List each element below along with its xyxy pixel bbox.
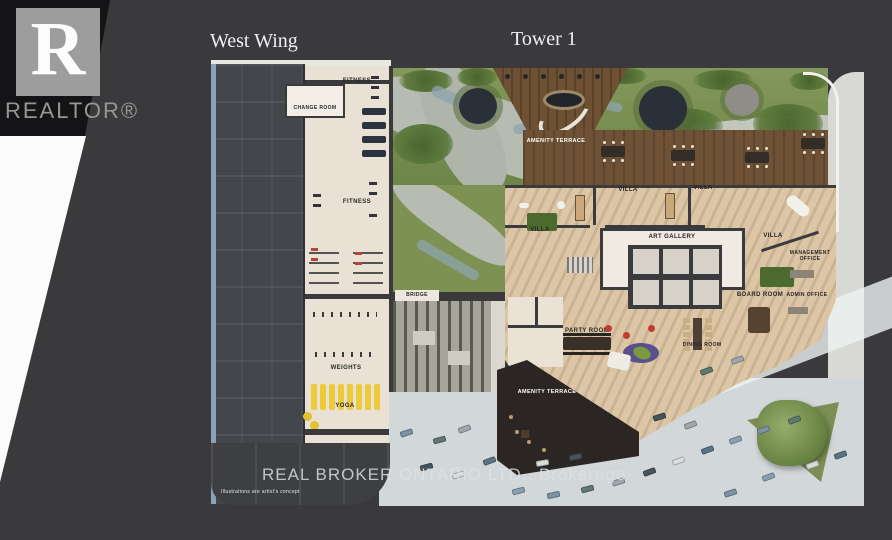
gym-equipment-icon bbox=[371, 86, 379, 89]
sofa-icon bbox=[557, 201, 565, 209]
elevator-core bbox=[628, 245, 722, 309]
label-board-room: BOARD ROOM bbox=[730, 292, 790, 299]
chair-icon bbox=[683, 318, 690, 323]
red-chair-icon bbox=[623, 332, 630, 339]
chair-icon bbox=[683, 332, 690, 337]
chair-icon bbox=[612, 141, 615, 144]
chair-icon bbox=[765, 165, 768, 168]
tree-icon bbox=[757, 400, 827, 466]
chair-icon bbox=[705, 318, 712, 323]
tower-title: Tower 1 bbox=[511, 28, 577, 51]
amenity-terrace-top: AMENITY TERRACE bbox=[393, 68, 828, 185]
table-icon bbox=[575, 195, 585, 221]
chair-icon bbox=[747, 147, 750, 150]
west-wing-slab bbox=[211, 64, 305, 504]
patio-chair-icon bbox=[509, 415, 513, 419]
label-villa-1: VILLA bbox=[603, 187, 653, 194]
outdoor-table-icon bbox=[671, 150, 695, 161]
listing-image: R REALTOR® West Wing Tower 1 FITNESS CHA… bbox=[0, 0, 892, 540]
label-fitness-mid: FITNESS bbox=[327, 199, 387, 206]
weights-icon bbox=[311, 248, 318, 251]
label-bridge: BRIDGE bbox=[395, 293, 439, 299]
wall bbox=[508, 325, 563, 328]
label-amenity-terrace-top: AMENITY TERRACE bbox=[511, 138, 601, 144]
west-wing-blue-edge bbox=[211, 64, 216, 504]
chair-icon bbox=[603, 141, 606, 144]
label-villa-2: VILLA bbox=[678, 185, 728, 192]
label-dining-room: DINING ROOM bbox=[682, 343, 722, 349]
red-chair-icon bbox=[648, 325, 655, 332]
chair-icon bbox=[691, 163, 694, 166]
elevator-cell bbox=[663, 249, 689, 274]
treadmill-icon bbox=[362, 150, 386, 157]
realtor-r-glyph: R bbox=[16, 2, 100, 96]
patio-chair-icon bbox=[527, 440, 531, 444]
boardroom-table-icon bbox=[748, 307, 770, 333]
white-wedge-shape bbox=[0, 136, 86, 482]
chair-icon bbox=[765, 147, 768, 150]
barbell-row-icon bbox=[313, 312, 377, 317]
wall bbox=[305, 429, 389, 435]
brokerage-watermark: REAL BROKER ONTARIO LTD., Brokerage bbox=[262, 465, 626, 485]
chair-icon bbox=[705, 332, 712, 337]
planter-icon bbox=[459, 88, 497, 124]
chair-icon bbox=[673, 145, 676, 148]
label-yoga: YOGA bbox=[315, 403, 375, 410]
patio-chair-icon bbox=[542, 448, 546, 452]
gym-equipment-icon bbox=[313, 204, 321, 207]
label-art-gallery: ART GALLERY bbox=[622, 234, 722, 241]
realtor-wordmark: REALTOR® bbox=[5, 98, 135, 124]
change-room: CHANGE ROOM bbox=[285, 84, 345, 118]
gym-equipment-icon bbox=[369, 214, 377, 217]
treadmill-icon bbox=[362, 108, 386, 115]
elevator-cell bbox=[633, 249, 659, 274]
stool-icon bbox=[595, 74, 600, 79]
chair-icon bbox=[683, 325, 690, 330]
weights-icon bbox=[355, 252, 362, 255]
chair-icon bbox=[756, 147, 759, 150]
bush-icon bbox=[457, 68, 497, 86]
weights-icon bbox=[311, 258, 318, 261]
label-villa-3: VILLA bbox=[515, 227, 565, 234]
elevator-cell bbox=[693, 249, 719, 274]
red-chair-icon bbox=[605, 325, 612, 332]
elevator-cell bbox=[633, 280, 659, 305]
desk-icon bbox=[788, 307, 808, 314]
chair-icon bbox=[673, 163, 676, 166]
chair-icon bbox=[756, 165, 759, 168]
piano-icon bbox=[607, 351, 632, 371]
wall bbox=[593, 185, 596, 225]
label-weights: WEIGHTS bbox=[316, 365, 376, 372]
bush-icon bbox=[393, 124, 453, 164]
chair-icon bbox=[612, 159, 615, 162]
rug bbox=[760, 267, 794, 287]
stool-icon bbox=[541, 74, 546, 79]
chair-icon bbox=[705, 325, 712, 330]
wall bbox=[505, 185, 836, 188]
desk-icon bbox=[790, 270, 814, 278]
wall bbox=[305, 294, 389, 299]
table-icon bbox=[665, 193, 675, 219]
patio-chair-icon bbox=[515, 430, 519, 434]
realtor-logo-icon: R bbox=[16, 8, 100, 96]
label-villa-4: VILLA bbox=[748, 233, 798, 240]
west-wing-title: West Wing bbox=[210, 30, 298, 53]
outdoor-table-icon bbox=[745, 152, 769, 163]
party-table-icon bbox=[563, 337, 611, 350]
fitness-wing: FITNESS CHANGE ROOM FITNESS bbox=[305, 66, 389, 443]
gym-equipment-icon bbox=[313, 194, 321, 197]
wall bbox=[535, 297, 538, 325]
planter-icon bbox=[639, 86, 687, 132]
chairs-row bbox=[563, 352, 611, 355]
chair-icon bbox=[621, 141, 624, 144]
exercise-ball-icon bbox=[303, 412, 312, 421]
support-rooms bbox=[508, 297, 563, 367]
stairs-icon bbox=[567, 257, 593, 273]
terrace-lawn bbox=[393, 185, 505, 292]
chair-icon bbox=[691, 145, 694, 148]
elevator-cell bbox=[663, 280, 689, 305]
label-management-office: MANAGEMENT OFFICE bbox=[780, 251, 840, 263]
bridge-panel bbox=[448, 351, 470, 365]
gym-equipment-icon bbox=[371, 96, 379, 99]
chair-icon bbox=[747, 165, 750, 168]
elevator-cell bbox=[693, 280, 719, 305]
treadmill-icon bbox=[362, 122, 386, 129]
sofa-icon bbox=[519, 203, 529, 208]
chair-icon bbox=[682, 145, 685, 148]
weights-icon bbox=[355, 262, 362, 265]
chair-icon bbox=[603, 159, 606, 162]
bridge bbox=[393, 301, 491, 392]
chair-icon bbox=[621, 159, 624, 162]
barbell-row-icon bbox=[315, 352, 377, 357]
stool-icon bbox=[577, 74, 582, 79]
label-admin-office: ADMIN OFFICE bbox=[783, 293, 831, 299]
building-edge-outline bbox=[803, 72, 839, 232]
bridge-tab: BRIDGE bbox=[395, 290, 439, 301]
gym-equipment-icon bbox=[371, 76, 379, 79]
bridge-panel bbox=[413, 331, 435, 345]
chair-icon bbox=[682, 163, 685, 166]
floor-plan: FITNESS CHANGE ROOM FITNESS bbox=[211, 60, 864, 506]
stool-icon bbox=[559, 74, 564, 79]
patio-table-icon bbox=[521, 430, 529, 438]
gym-equipment-icon bbox=[369, 192, 377, 195]
label-change-room: CHANGE ROOM bbox=[287, 106, 343, 112]
boulder-icon bbox=[725, 84, 759, 116]
gym-equipment-icon bbox=[369, 182, 377, 185]
treadmill-icon bbox=[362, 136, 386, 143]
stool-icon bbox=[523, 74, 528, 79]
stool-icon bbox=[505, 74, 510, 79]
disclaimer-text: Illustrations are artist's concept bbox=[221, 489, 300, 495]
outdoor-table-icon bbox=[601, 146, 625, 157]
